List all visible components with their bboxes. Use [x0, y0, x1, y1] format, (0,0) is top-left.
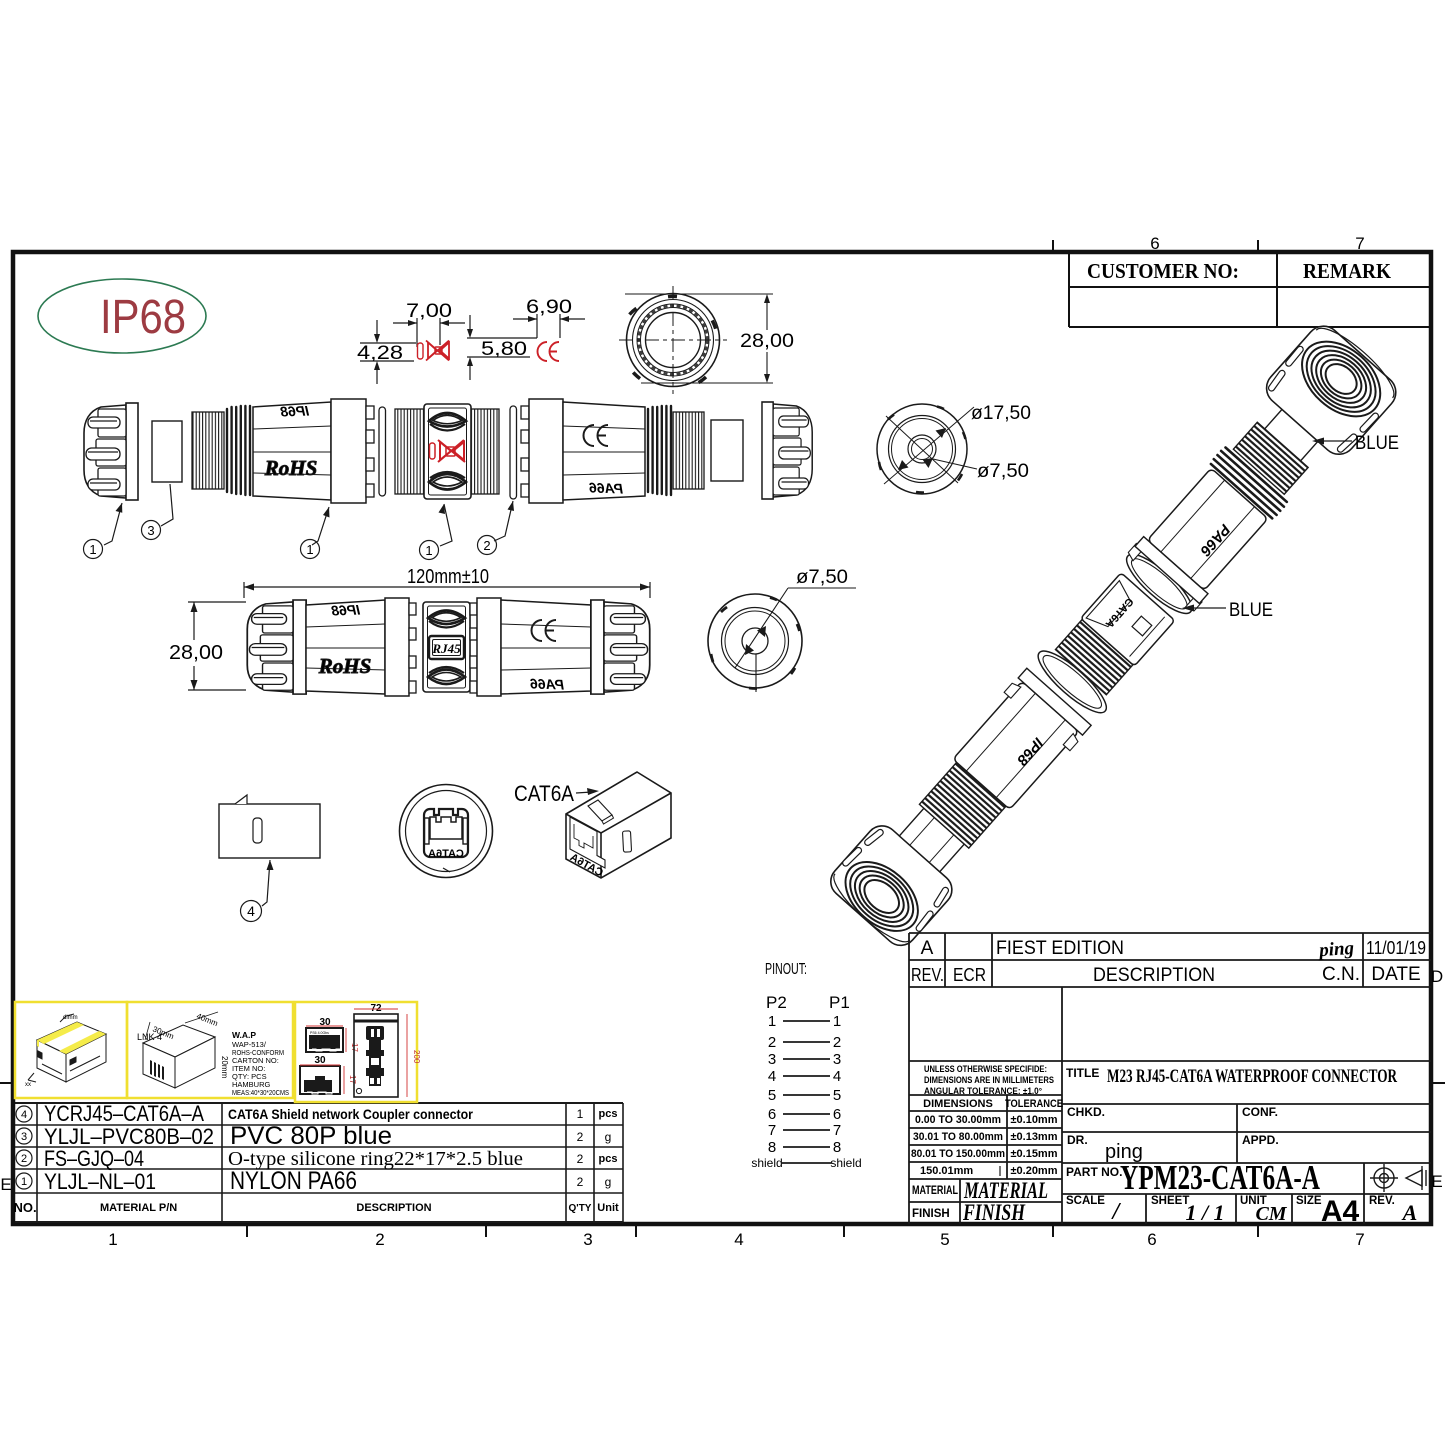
- svg-text:DESCRIPTION: DESCRIPTION: [1093, 965, 1215, 986]
- svg-text:TITLE: TITLE: [1066, 1066, 1099, 1080]
- svg-text:CAT6A Shield network Couple: CAT6A Shield network Coupler connector: [228, 1107, 474, 1122]
- svg-text:PA66: PA66: [589, 479, 624, 496]
- svg-text:DIMENSIONS ARE IN MILLIMETE: DIMENSIONS ARE IN MILLIMETERS: [924, 1075, 1054, 1085]
- svg-text:±0.15mm: ±0.15mm: [1010, 1148, 1057, 1160]
- svg-text:CONF.: CONF.: [1242, 1105, 1278, 1119]
- svg-text:IP68: IP68: [280, 403, 310, 420]
- svg-text:±0.20mm: ±0.20mm: [1010, 1165, 1057, 1177]
- svg-text:D: D: [1431, 967, 1443, 986]
- svg-text:E: E: [1431, 1172, 1442, 1191]
- svg-text:30: 30: [314, 1055, 326, 1066]
- svg-text:P2: P2: [766, 993, 787, 1012]
- svg-text:28,00: 28,00: [169, 642, 223, 664]
- svg-text:8: 8: [833, 1139, 841, 1156]
- svg-text:TOLERANCE: TOLERANCE: [1005, 1098, 1063, 1110]
- svg-text:5: 5: [940, 1230, 949, 1249]
- svg-text:8: 8: [768, 1139, 776, 1156]
- svg-text:PVC 80P blue: PVC 80P blue: [230, 1122, 392, 1150]
- svg-text:4: 4: [247, 903, 255, 919]
- svg-text:REMARK: REMARK: [1303, 259, 1392, 283]
- svg-text:DR.: DR.: [1067, 1133, 1088, 1147]
- svg-text:1: 1: [306, 542, 313, 557]
- svg-text:CAT6A: CAT6A: [428, 848, 464, 860]
- svg-text:MEAS:40*30*20CMS: MEAS:40*30*20CMS: [232, 1088, 289, 1097]
- svg-text:1: 1: [89, 542, 96, 557]
- svg-text:3: 3: [583, 1230, 592, 1249]
- svg-text:BLUE: BLUE: [1229, 600, 1273, 621]
- svg-text:28,00: 28,00: [740, 331, 794, 352]
- svg-text:SIZE: SIZE: [1296, 1195, 1322, 1207]
- svg-text:4: 4: [768, 1068, 776, 1085]
- svg-text:NO.: NO.: [13, 1200, 36, 1215]
- svg-text:1: 1: [21, 1176, 27, 1188]
- svg-text:ANGULAR TOLERANCE: ±1.0°: ANGULAR TOLERANCE: ±1.0°: [924, 1086, 1042, 1096]
- svg-text:SCALE: SCALE: [1066, 1195, 1105, 1207]
- svg-text:3: 3: [833, 1051, 841, 1068]
- svg-text:FS–GJQ–04: FS–GJQ–04: [44, 1146, 144, 1171]
- svg-text:ø7,50: ø7,50: [796, 567, 848, 588]
- svg-text:2: 2: [577, 1175, 584, 1189]
- svg-text:5: 5: [768, 1087, 776, 1104]
- svg-text:6: 6: [833, 1106, 841, 1123]
- svg-text:A: A: [1401, 1200, 1418, 1225]
- svg-text:FIEST EDITION: FIEST EDITION: [996, 938, 1124, 959]
- svg-text:M23 RJ45-CAT6A WATERPROOF CONN: M23 RJ45-CAT6A WATERPROOF CONNECTOR: [1107, 1066, 1397, 1087]
- svg-text:MATERIAL: MATERIAL: [912, 1185, 958, 1197]
- svg-text:7: 7: [1355, 234, 1364, 253]
- svg-text:72: 72: [370, 1003, 382, 1014]
- svg-text:6: 6: [1150, 234, 1159, 253]
- svg-text:xx: xx: [25, 1082, 31, 1088]
- svg-text:CUSTOMER NO:: CUSTOMER NO:: [1087, 259, 1239, 283]
- svg-text:W.A.P: W.A.P: [232, 1030, 256, 1040]
- svg-text:IP68: IP68: [100, 291, 186, 344]
- svg-text:IP68: IP68: [331, 602, 361, 619]
- svg-text:pcs: pcs: [599, 1108, 618, 1120]
- svg-text:P1: P1: [829, 993, 850, 1012]
- svg-text:RJ45: RJ45: [431, 641, 461, 656]
- svg-text:2: 2: [21, 1153, 27, 1165]
- svg-text:20mm: 20mm: [220, 1056, 229, 1079]
- svg-text:ø17,50: ø17,50: [971, 403, 1031, 424]
- svg-text:SHEET: SHEET: [1151, 1195, 1189, 1207]
- svg-text:17: 17: [348, 1075, 357, 1084]
- svg-text:80.01 TO 150.00mm: 80.01 TO 150.00mm: [911, 1148, 1005, 1160]
- svg-text:YLJL–NL–01: YLJL–NL–01: [44, 1169, 156, 1194]
- svg-text:pcs: pcs: [599, 1153, 618, 1165]
- svg-text:120mm±10: 120mm±10: [407, 566, 489, 588]
- svg-text:RoHS: RoHS: [318, 654, 372, 678]
- svg-text:PA66: PA66: [530, 675, 565, 692]
- svg-text:1: 1: [768, 1013, 776, 1030]
- svg-text:7: 7: [1355, 1230, 1364, 1249]
- svg-text:DESCRIPTION: DESCRIPTION: [356, 1202, 431, 1214]
- svg-text:1: 1: [833, 1013, 841, 1030]
- svg-text:REV.: REV.: [1369, 1195, 1395, 1207]
- svg-text:DATE: DATE: [1371, 964, 1420, 985]
- svg-text:NYLON PA66: NYLON PA66: [230, 1167, 357, 1195]
- svg-text:6: 6: [768, 1106, 776, 1123]
- svg-text:dimm: dimm: [63, 1015, 78, 1021]
- svg-text:ping: ping: [1317, 938, 1355, 962]
- svg-text:4: 4: [734, 1230, 743, 1249]
- svg-text:CAT6A: CAT6A: [514, 781, 574, 806]
- svg-text:1: 1: [577, 1107, 584, 1121]
- svg-text:5: 5: [833, 1087, 841, 1104]
- svg-text:PS6 4.0Gbs: PS6 4.0Gbs: [310, 1031, 329, 1035]
- svg-text:APPD.: APPD.: [1242, 1133, 1279, 1147]
- svg-text:g: g: [605, 1175, 612, 1189]
- svg-text:30.01 TO 80.00mm: 30.01 TO 80.00mm: [913, 1131, 1003, 1143]
- svg-text:11/01/19: 11/01/19: [1366, 938, 1426, 958]
- svg-text:6: 6: [1147, 1230, 1156, 1249]
- svg-text:A: A: [921, 938, 934, 959]
- svg-text:4: 4: [21, 1109, 27, 1121]
- svg-text:DIMENSIONS: DIMENSIONS: [923, 1098, 993, 1110]
- svg-text:ø7,50: ø7,50: [977, 461, 1029, 482]
- svg-text:2: 2: [483, 538, 490, 553]
- svg-text:A4: A4: [1321, 1195, 1360, 1228]
- svg-text:BLUE: BLUE: [1355, 433, 1399, 454]
- svg-text:3: 3: [768, 1051, 776, 1068]
- svg-text:7: 7: [833, 1122, 841, 1139]
- svg-text:7: 7: [768, 1122, 776, 1139]
- svg-text:PINOUT:: PINOUT:: [765, 961, 807, 978]
- svg-text:1: 1: [425, 543, 432, 558]
- svg-text:E: E: [0, 1175, 11, 1194]
- svg-text:CM: CM: [1255, 1203, 1287, 1225]
- svg-text:UNLESS OTHERWISE SPECIFIDE:: UNLESS OTHERWISE SPECIFIDE:: [924, 1064, 1047, 1074]
- svg-text:Unit: Unit: [597, 1202, 619, 1214]
- svg-text:6,90: 6,90: [526, 297, 572, 318]
- svg-text:4: 4: [833, 1068, 841, 1085]
- svg-text:3: 3: [147, 523, 154, 538]
- svg-text:REV.: REV.: [911, 965, 944, 985]
- svg-text:2: 2: [833, 1034, 841, 1051]
- svg-text:2: 2: [768, 1034, 776, 1051]
- svg-text:C.N.: C.N.: [1322, 964, 1360, 985]
- svg-text:2: 2: [375, 1230, 384, 1249]
- svg-text:shield: shield: [830, 1156, 861, 1170]
- svg-text:0.00 TO 30.00mm: 0.00 TO 30.00mm: [915, 1114, 1001, 1126]
- svg-text:7,00: 7,00: [406, 301, 452, 322]
- svg-text:FINISH: FINISH: [912, 1208, 950, 1220]
- svg-text:1 / 1: 1 / 1: [1185, 1200, 1224, 1225]
- svg-text:YPM23-CAT6A-A: YPM23-CAT6A-A: [1120, 1158, 1321, 1197]
- svg-text:200: 200: [412, 1050, 421, 1064]
- svg-text:FINISH: FINISH: [962, 1200, 1026, 1225]
- svg-text:150.01mm: 150.01mm: [920, 1165, 973, 1177]
- svg-text:2: 2: [577, 1152, 584, 1166]
- svg-text:2: 2: [577, 1130, 584, 1144]
- svg-text:±0.10mm: ±0.10mm: [1010, 1114, 1057, 1126]
- svg-text:shield: shield: [751, 1156, 782, 1170]
- svg-text:CHKD.: CHKD.: [1067, 1105, 1105, 1119]
- svg-text:1: 1: [108, 1230, 117, 1249]
- svg-text:PART NO.: PART NO.: [1066, 1165, 1122, 1179]
- svg-text:g: g: [605, 1130, 612, 1144]
- svg-text:ECR: ECR: [953, 965, 986, 985]
- svg-text:MATERIAL P/N: MATERIAL P/N: [100, 1202, 177, 1214]
- svg-text:±0.13mm: ±0.13mm: [1010, 1131, 1057, 1143]
- svg-text:YCRJ45–CAT6A–A: YCRJ45–CAT6A–A: [44, 1101, 204, 1126]
- svg-text:3: 3: [21, 1131, 27, 1143]
- svg-text:Q'TY: Q'TY: [569, 1203, 592, 1214]
- svg-text:RoHS: RoHS: [264, 456, 318, 480]
